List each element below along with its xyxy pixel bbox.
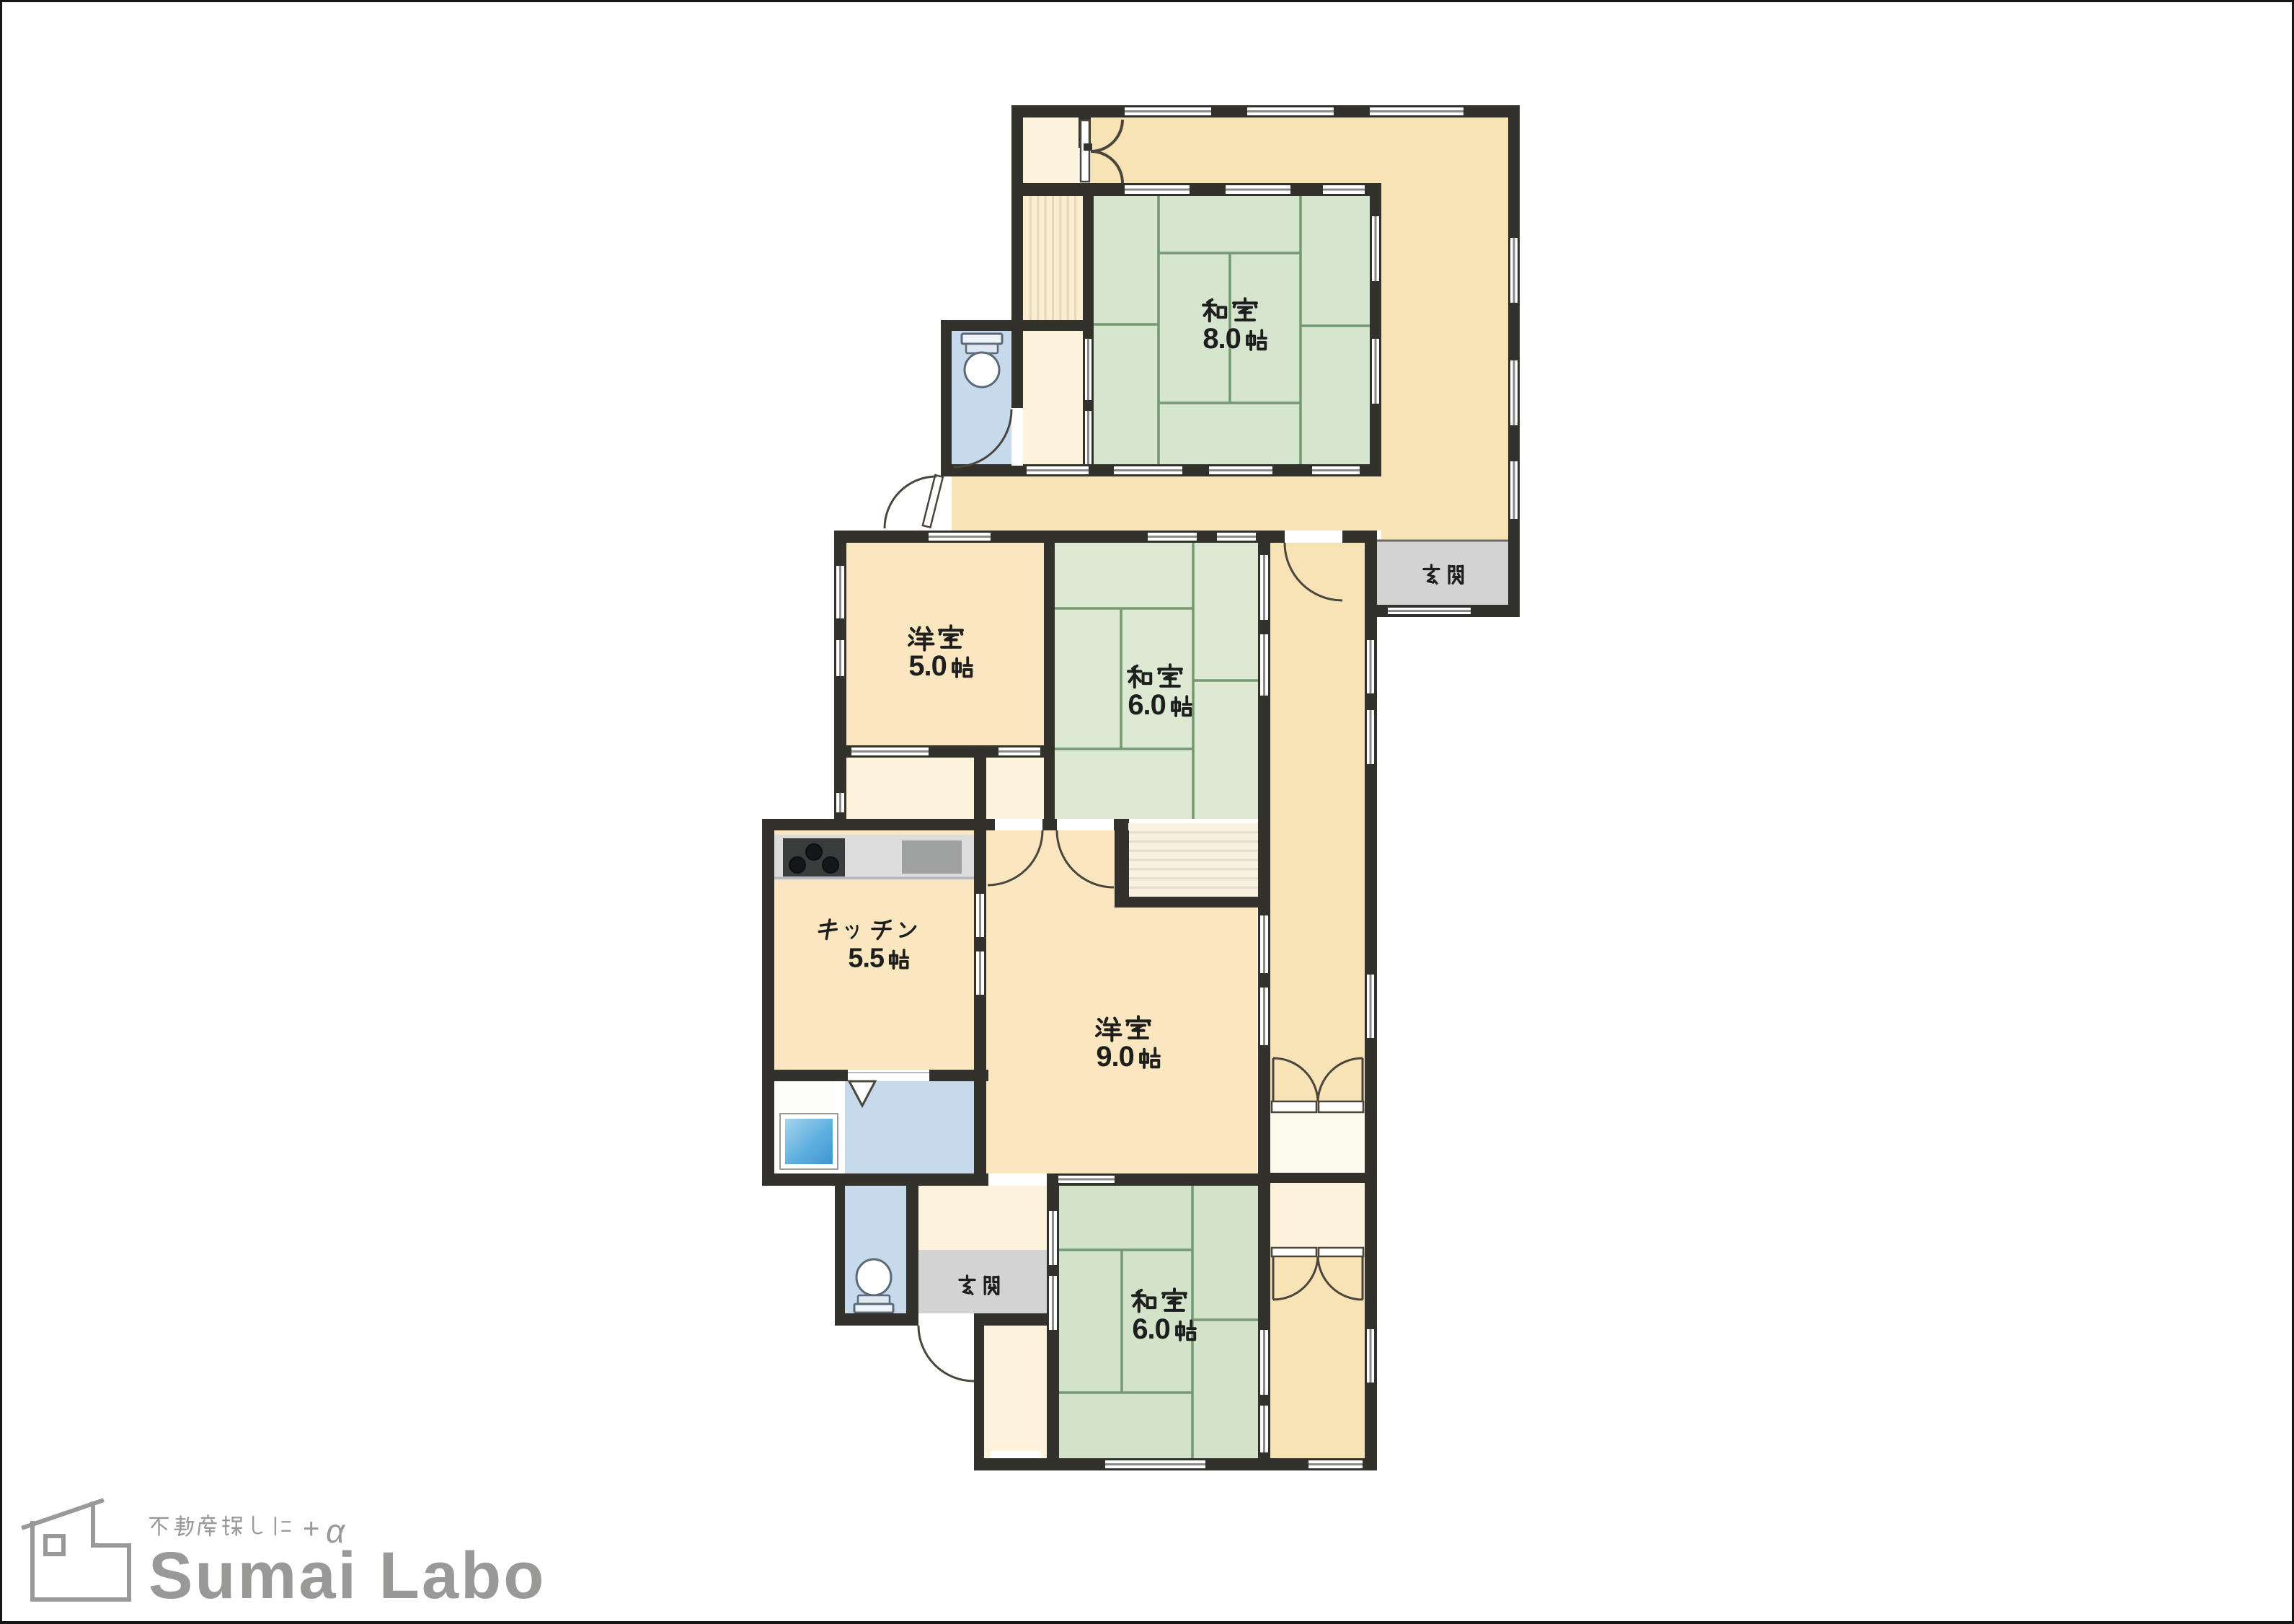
svg-text:9.0: 9.0 <box>1096 1041 1133 1073</box>
svg-text:8.0: 8.0 <box>1203 323 1240 355</box>
svg-text:5.5: 5.5 <box>848 944 884 974</box>
svg-text:5.0: 5.0 <box>908 650 946 682</box>
svg-text:6.0: 6.0 <box>1128 689 1165 721</box>
svg-text:Sumai Labo: Sumai Labo <box>149 1539 546 1612</box>
svg-text:6.0: 6.0 <box>1132 1313 1169 1345</box>
